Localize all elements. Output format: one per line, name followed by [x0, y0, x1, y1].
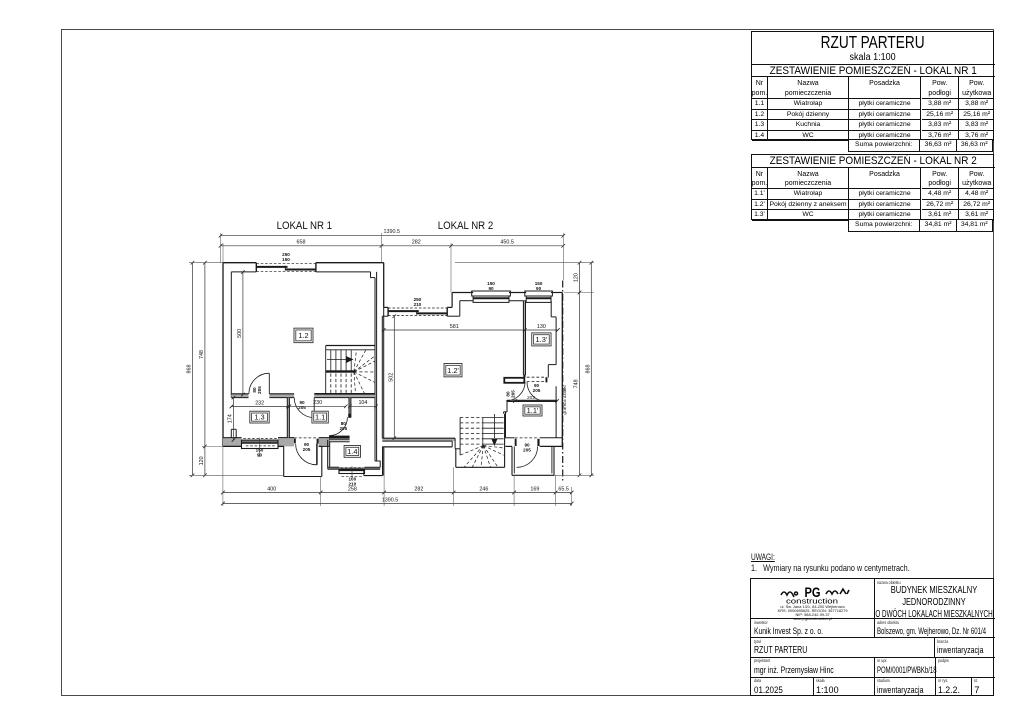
svg-text:90: 90 — [257, 453, 263, 458]
svg-text:1.1': 1.1' — [527, 406, 539, 415]
svg-text:205: 205 — [303, 447, 311, 452]
svg-text:748: 748 — [574, 379, 580, 388]
svg-text:90: 90 — [488, 286, 494, 291]
svg-text:868: 868 — [187, 365, 193, 374]
svg-text:LOKAL NR 1: LOKAL NR 1 — [277, 220, 332, 232]
svg-text:205: 205 — [523, 448, 531, 453]
svg-text:90: 90 — [536, 286, 542, 291]
svg-text:1.2: 1.2 — [298, 331, 308, 340]
svg-text:748: 748 — [199, 350, 205, 359]
svg-text:282: 282 — [414, 486, 423, 492]
svg-text:658: 658 — [297, 240, 306, 246]
svg-text:202: 202 — [527, 395, 535, 401]
svg-text:868: 868 — [585, 365, 591, 374]
svg-text:205: 205 — [339, 426, 347, 431]
svg-text:205: 205 — [511, 390, 516, 398]
svg-text:1.4: 1.4 — [347, 447, 357, 456]
svg-text:1.1: 1.1 — [315, 413, 325, 422]
svg-text:150: 150 — [282, 257, 290, 262]
svg-text:LOKAL NR 2: LOKAL NR 2 — [438, 220, 493, 232]
svg-text:282: 282 — [412, 240, 421, 246]
svg-text:granica działki: granica działki — [562, 385, 567, 414]
svg-text:205: 205 — [298, 405, 306, 410]
svg-text:205: 205 — [257, 386, 262, 394]
svg-text:246: 246 — [479, 486, 488, 492]
svg-text:1.3: 1.3 — [254, 413, 264, 422]
svg-text:104: 104 — [358, 400, 367, 406]
svg-text:1390.5: 1390.5 — [384, 229, 401, 235]
svg-text:258: 258 — [348, 486, 357, 492]
svg-text:174: 174 — [228, 414, 234, 423]
svg-text:400: 400 — [267, 486, 276, 492]
svg-text:210: 210 — [414, 302, 422, 307]
svg-text:230: 230 — [313, 400, 322, 406]
svg-text:1.2': 1.2' — [447, 366, 459, 375]
svg-text:205: 205 — [533, 388, 541, 393]
svg-text:232: 232 — [255, 400, 264, 406]
svg-text:169: 169 — [530, 486, 539, 492]
svg-text:502: 502 — [388, 373, 394, 382]
svg-text:120: 120 — [199, 456, 205, 465]
svg-text:130: 130 — [537, 324, 546, 330]
svg-text:65.5: 65.5 — [558, 486, 569, 492]
svg-text:581: 581 — [450, 324, 459, 330]
svg-text:120: 120 — [574, 273, 580, 282]
svg-text:500: 500 — [237, 329, 243, 338]
svg-text:1.3': 1.3' — [536, 335, 548, 344]
svg-text:450.5: 450.5 — [500, 240, 514, 246]
